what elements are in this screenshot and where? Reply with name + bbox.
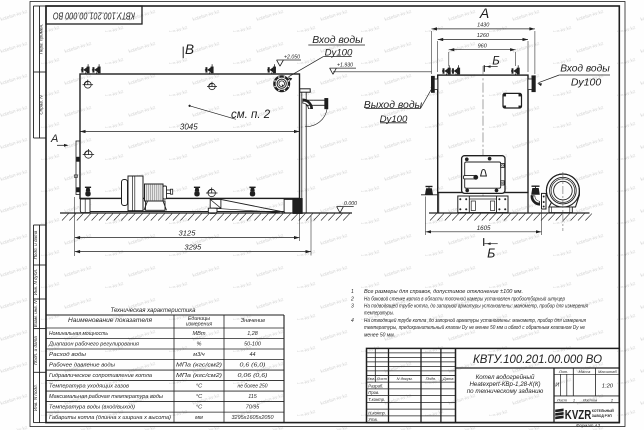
svg-text:Инв. N подл.: Инв. N подл. xyxy=(33,384,38,411)
svg-text:2: 2 xyxy=(350,296,354,302)
svg-text:МПа (кгс/см2): МПа (кгс/см2) xyxy=(176,373,222,379)
svg-text:Значение: Значение xyxy=(241,318,266,324)
svg-text:Т.контр.: Т.контр. xyxy=(368,397,385,402)
svg-text:960: 960 xyxy=(478,44,488,50)
svg-text:Гидравлическое сопротивление к: Гидравлическое сопротивление котла xyxy=(49,373,152,379)
svg-text:На подводящей трубе котла, до: На подводящей трубе котла, до запорной а… xyxy=(364,303,588,310)
svg-text:Лист: Лист xyxy=(376,376,388,381)
svg-text:Вход воды: Вход воды xyxy=(560,63,610,74)
svg-text:1: 1 xyxy=(351,289,354,295)
svg-text:Перв. примен.: Перв. примен. xyxy=(39,24,44,55)
svg-text:Dy100: Dy100 xyxy=(571,77,602,89)
svg-text:мм: мм xyxy=(195,415,203,421)
svg-text:На отводящей трубе котла ,до з: На отводящей трубе котла ,до запорной ар… xyxy=(364,317,586,324)
svg-text:Подп. и дата: Подп. и дата xyxy=(33,336,38,365)
svg-text:Температура воды (вход/выход): Температура воды (вход/выход) xyxy=(49,405,135,411)
svg-text:Выход воды: Выход воды xyxy=(364,100,423,111)
svg-text:Температура уходящих газов: Температура уходящих газов xyxy=(49,384,129,390)
svg-text:0,6 (6,0): 0,6 (6,0) xyxy=(240,363,266,369)
svg-text:КВТУ.100.201.00.000 ВО: КВТУ.100.201.00.000 ВО xyxy=(473,352,602,366)
svg-text:Наименование показателя: Наименование показателя xyxy=(68,318,153,324)
svg-text:Dy100: Dy100 xyxy=(380,114,408,125)
svg-text:Разраб.: Разраб. xyxy=(368,384,383,389)
svg-text:КОТЕЛЬНЫЙ: КОТЕЛЬНЫЙ xyxy=(592,409,615,413)
svg-text:На боковой стенке котла в обла: На боковой стенке котла в области топочн… xyxy=(364,295,565,302)
svg-text:1: 1 xyxy=(573,397,575,402)
svg-text:Подп.: Подп. xyxy=(426,376,437,381)
svg-text:Габариты котла (длинна х ширин: Габариты котла (длинна х ширина х высота… xyxy=(49,415,171,421)
svg-text:менее 50 мм.: менее 50 мм. xyxy=(364,332,395,338)
svg-text:Н.контр.: Н.контр. xyxy=(368,411,386,416)
svg-text:ЗАВОД РЭП: ЗАВОД РЭП xyxy=(592,414,613,418)
svg-text:Диапазон рабочего регулировани: Диапазон рабочего регулирования xyxy=(48,342,139,348)
svg-text:Справ. N: Справ. N xyxy=(39,95,44,115)
svg-text:Максимальная рабочая температу: Максимальная рабочая температура воды xyxy=(49,394,163,400)
svg-text:Техническая характеристика: Техническая характеристика xyxy=(111,308,197,314)
svg-text:Пров.: Пров. xyxy=(368,390,379,395)
svg-text:А: А xyxy=(50,133,58,145)
svg-text:Изм.: Изм. xyxy=(367,376,376,381)
svg-text:Б: Б xyxy=(492,55,500,67)
svg-text:Подп. и дата: Подп. и дата xyxy=(33,230,38,259)
svg-text:Масштаб: Масштаб xyxy=(598,369,617,374)
svg-text:Номинальная мощность: Номинальная мощность xyxy=(49,331,108,337)
svg-text:50-100: 50-100 xyxy=(244,342,261,348)
svg-text:+1.930: +1.930 xyxy=(337,63,353,69)
svg-text:м3/ч: м3/ч xyxy=(193,352,204,358)
svg-text:температуры.: температуры. xyxy=(364,311,394,317)
svg-text:N докум.: N докум. xyxy=(397,376,413,381)
svg-text:см. п. 2: см. п. 2 xyxy=(231,109,271,121)
svg-text:Рабочее давление воды: Рабочее давление воды xyxy=(49,363,115,369)
svg-text:1:20: 1:20 xyxy=(602,383,614,389)
svg-text:Расход воды: Расход воды xyxy=(49,352,86,358)
svg-text:И: И xyxy=(555,383,559,389)
svg-text:0,06 (0,6): 0,06 (0,6) xyxy=(238,373,268,379)
svg-text:температуры, предохранительный: температуры, предохранительный клапан Dy… xyxy=(364,324,585,331)
svg-text:1605: 1605 xyxy=(477,225,491,232)
svg-text:Лист: Лист xyxy=(556,397,568,402)
svg-text:МВт: МВт xyxy=(192,331,205,337)
svg-text:Все размеры для справок, допус: Все размеры для справок, допустимое откл… xyxy=(364,289,523,295)
svg-text:KVZR: KVZR xyxy=(565,409,592,422)
svg-text:А: А xyxy=(479,5,489,21)
svg-text:70/95: 70/95 xyxy=(246,405,260,411)
svg-text:Б: Б xyxy=(487,247,495,261)
svg-text:3295: 3295 xyxy=(184,243,202,252)
svg-text:Формат А3: Формат А3 xyxy=(576,423,601,428)
svg-text:°С: °С xyxy=(196,405,203,411)
svg-text:Лит.: Лит. xyxy=(558,369,568,374)
svg-text:4: 4 xyxy=(351,318,354,324)
svg-text:3045: 3045 xyxy=(180,123,198,132)
svg-text:3: 3 xyxy=(351,304,354,310)
svg-text:Дата: Дата xyxy=(442,376,454,381)
svg-text:1,28: 1,28 xyxy=(247,331,258,337)
svg-text:Взам. инв. N: Взам. инв. N xyxy=(33,300,38,327)
svg-text:Heatexpert-КВр-1,28-К(К): Heatexpert-КВр-1,28-К(К) xyxy=(469,381,540,388)
svg-text:МПа (кгс/см2): МПа (кгс/см2) xyxy=(176,363,222,369)
svg-text:44: 44 xyxy=(250,352,256,358)
svg-text:не более 250: не более 250 xyxy=(238,384,268,390)
svg-text:Вход воды: Вход воды xyxy=(312,35,363,46)
svg-text:Инв. N дубл.: Инв. N дубл. xyxy=(33,269,38,296)
svg-text:3125: 3125 xyxy=(179,228,197,237)
svg-text:В: В xyxy=(185,42,194,57)
svg-text:по техническому заданию: по техническому заданию xyxy=(467,388,544,395)
svg-text:%: % xyxy=(197,342,202,348)
svg-text:1430: 1430 xyxy=(477,23,490,29)
svg-text:КВТУ.100.201.00.000 ВО: КВТУ.100.201.00.000 ВО xyxy=(53,9,135,20)
svg-text:Утв.: Утв. xyxy=(368,417,378,422)
svg-text:°С: °С xyxy=(196,394,203,400)
svg-text:°С: °С xyxy=(196,384,203,390)
svg-text:0.000: 0.000 xyxy=(344,201,357,207)
svg-text:115: 115 xyxy=(248,394,258,400)
svg-text:Котел водогрейный: Котел водогрейный xyxy=(476,374,535,381)
svg-text:измерения: измерения xyxy=(186,322,213,328)
svg-text:1260: 1260 xyxy=(477,33,490,39)
svg-text:Листов: Листов xyxy=(582,397,598,402)
svg-text:+2.050: +2.050 xyxy=(284,54,300,60)
svg-text:3295х1605х2050: 3295х1605х2050 xyxy=(232,415,274,421)
svg-text:Масса: Масса xyxy=(578,369,591,374)
